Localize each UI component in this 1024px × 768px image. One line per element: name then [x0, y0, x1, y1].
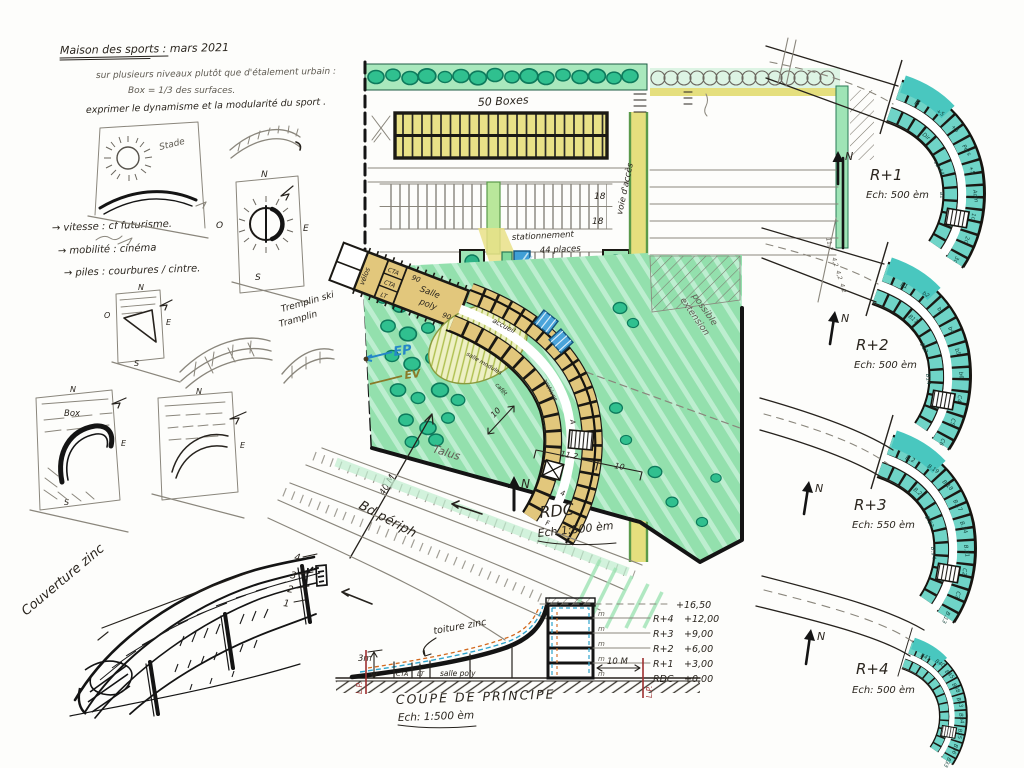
- section-scale: Ech: 1:500 èm: [398, 709, 475, 724]
- sheet-title: Maison des sports : mars 2021: [60, 41, 229, 57]
- study-massing-2: [282, 349, 334, 383]
- svg-text:4: 4: [294, 552, 302, 564]
- compass-n: N: [261, 170, 268, 180]
- svg-text:3: 3: [290, 570, 298, 582]
- perspective-sketch: Couverture zinc 4 3 2 1: [19, 541, 327, 718]
- section-room-1: CTA: [396, 670, 408, 678]
- svg-text:EP: EP: [392, 342, 413, 359]
- svg-text:L.P.: L.P.: [645, 686, 654, 698]
- sun-rays-icon: [104, 136, 152, 181]
- svg-text:N: N: [815, 482, 823, 495]
- svg-text:m: m: [598, 610, 605, 618]
- svg-text:+9,00: +9,00: [684, 629, 713, 640]
- stairs-cell: [568, 430, 593, 450]
- compass-n: N: [70, 385, 76, 394]
- svg-text:C4: C4: [955, 395, 962, 403]
- sketch-sheet: Maison des sports : mars 2021 sur plusie…: [0, 0, 1024, 768]
- svg-text:11,2: 11,2: [824, 237, 834, 252]
- note-line-3: exprimer le dynamisme et la modularité d…: [86, 97, 327, 116]
- svg-text:m: m: [598, 625, 605, 633]
- floor-scale: Ech: 500 èm: [866, 189, 929, 201]
- notes-block: Maison des sports : mars 2021 sur plusie…: [52, 41, 336, 279]
- svg-text:10 M: 10 M: [607, 657, 629, 667]
- note-bullet-1: → vitesse : cf futurisme.: [52, 219, 172, 234]
- svg-text:R+3: R+3: [653, 629, 674, 640]
- svg-text:+3,00: +3,00: [684, 659, 713, 670]
- study-plan-curve: N E: [152, 387, 246, 518]
- compass-e: E: [121, 439, 127, 448]
- svg-text:m: m: [598, 640, 605, 648]
- floor-name: R+1: [870, 166, 903, 184]
- section-drawing: +16,50 R+4 +12,00 R+3 +9,00 R+2 +6,00 R+…: [336, 598, 719, 728]
- svg-text:4,2: 4,2: [838, 283, 847, 294]
- pencil-cross: [372, 116, 390, 142]
- parking-count-1: 18: [594, 192, 606, 202]
- svg-text:RDC: RDC: [653, 674, 674, 685]
- level-labels: R+4 +12,00 R+3 +9,00 R+2 +6,00 R+1 +3,00…: [653, 614, 719, 685]
- tiny-note-scribble: [705, 94, 708, 116]
- parking-count-2: 18: [592, 217, 604, 227]
- svg-text:1: 1: [283, 598, 291, 610]
- north-arrow-icon: N: [828, 311, 849, 344]
- box-label: Box: [64, 409, 81, 419]
- svg-text:N: N: [841, 312, 849, 325]
- svg-text:+0,00: +0,00: [684, 674, 713, 685]
- svg-text:N: N: [817, 630, 825, 643]
- svg-text:4,2: 4,2: [830, 257, 839, 268]
- site-plan: 50 Boxes 18 18 8 stationnement 44 places: [268, 62, 874, 640]
- svg-text:R+2: R+2: [653, 644, 674, 655]
- level-top: +16,50: [676, 600, 711, 611]
- svg-text:N: N: [845, 150, 853, 163]
- note-bullet-3: → piles : courbures / cintre.: [64, 263, 201, 279]
- floor-name: R+2: [856, 336, 889, 354]
- svg-text:1c: 1c: [970, 213, 976, 220]
- study-compass-circle: N O E S: [216, 170, 310, 303]
- context-hatch-right: [850, 90, 874, 160]
- study-massing-1: [180, 338, 272, 388]
- svg-text:+6,00: +6,00: [684, 644, 713, 655]
- caption-underline: [398, 725, 476, 728]
- compass-s: S: [134, 359, 139, 368]
- toiture-label: toiture zinc: [433, 617, 488, 637]
- floor-scale: Ech: 550 èm: [852, 519, 915, 531]
- compass-o: O: [216, 221, 223, 231]
- svg-text:B.14: B.14: [929, 547, 936, 561]
- north-arrow-icon: N: [804, 629, 825, 664]
- svg-text:+12,00: +12,00: [684, 614, 719, 625]
- compass-n: N: [196, 387, 202, 396]
- note-line-2: Box = 1/3 des surfaces.: [128, 86, 235, 96]
- compass-e: E: [240, 441, 246, 450]
- compass-e: E: [166, 318, 172, 327]
- floor-name: R+4: [856, 660, 889, 678]
- path-top-right: [650, 88, 838, 96]
- svg-text:4,2: 4,2: [834, 270, 843, 281]
- parking-label-1: stationnement: [512, 230, 575, 243]
- note-bullet-2: → mobilité : cinéma: [58, 242, 157, 257]
- boxes-building: [395, 113, 607, 158]
- svg-text:C2: C2: [960, 568, 967, 576]
- note-line-1: sur plusieurs niveaux plutôt que d'étale…: [96, 66, 336, 81]
- svg-text:3m: 3m: [358, 654, 372, 664]
- section-room-3: salle poly: [440, 669, 476, 678]
- svg-text:b6: b6: [957, 371, 964, 379]
- study-plan-box: N E S Box: [30, 385, 128, 532]
- svg-text:2: 2: [287, 584, 295, 596]
- toiture-arrow: [423, 638, 436, 656]
- couverture-label: Couverture zinc: [19, 541, 108, 619]
- svg-text:L.P.: L.P.: [355, 682, 364, 694]
- north-label: N: [521, 477, 530, 491]
- stair-tower: [546, 598, 595, 678]
- drawing-canvas: Maison des sports : mars 2021 sur plusie…: [0, 0, 1024, 768]
- north-arrow-icon: N: [802, 481, 823, 514]
- compass-o: O: [104, 311, 110, 320]
- svg-text:10: 10: [614, 461, 626, 472]
- svg-text:B35: B35: [956, 728, 963, 739]
- study-compass-square: N O E S: [104, 283, 180, 382]
- compass-e: E: [303, 224, 309, 234]
- x-cell: [542, 460, 564, 480]
- section-room-2: LT: [417, 670, 425, 678]
- boxes-label: 50 Boxes: [477, 93, 529, 109]
- floor-name: R+3: [854, 496, 887, 514]
- compass-n: N: [138, 283, 144, 292]
- svg-text:B14: B14: [924, 374, 931, 386]
- compass-s: S: [255, 273, 261, 283]
- svg-text:R+4: R+4: [653, 614, 674, 625]
- svg-text:R+1: R+1: [653, 659, 674, 670]
- stade-label: Stade: [158, 137, 186, 153]
- plan-caption: RDC: [538, 499, 575, 522]
- study-arch-section: [230, 126, 301, 158]
- floor-scale: Ech: 500 èm: [854, 359, 917, 371]
- svg-text:m: m: [598, 655, 605, 663]
- floor-tile-r2: 11,2 4,2 4,2 4,2 N R+2 Ech: 500 èm b1 b2…: [762, 218, 970, 450]
- floor-scale: Ech: 500 èm: [852, 684, 915, 696]
- svg-text:a1: a1: [938, 192, 945, 199]
